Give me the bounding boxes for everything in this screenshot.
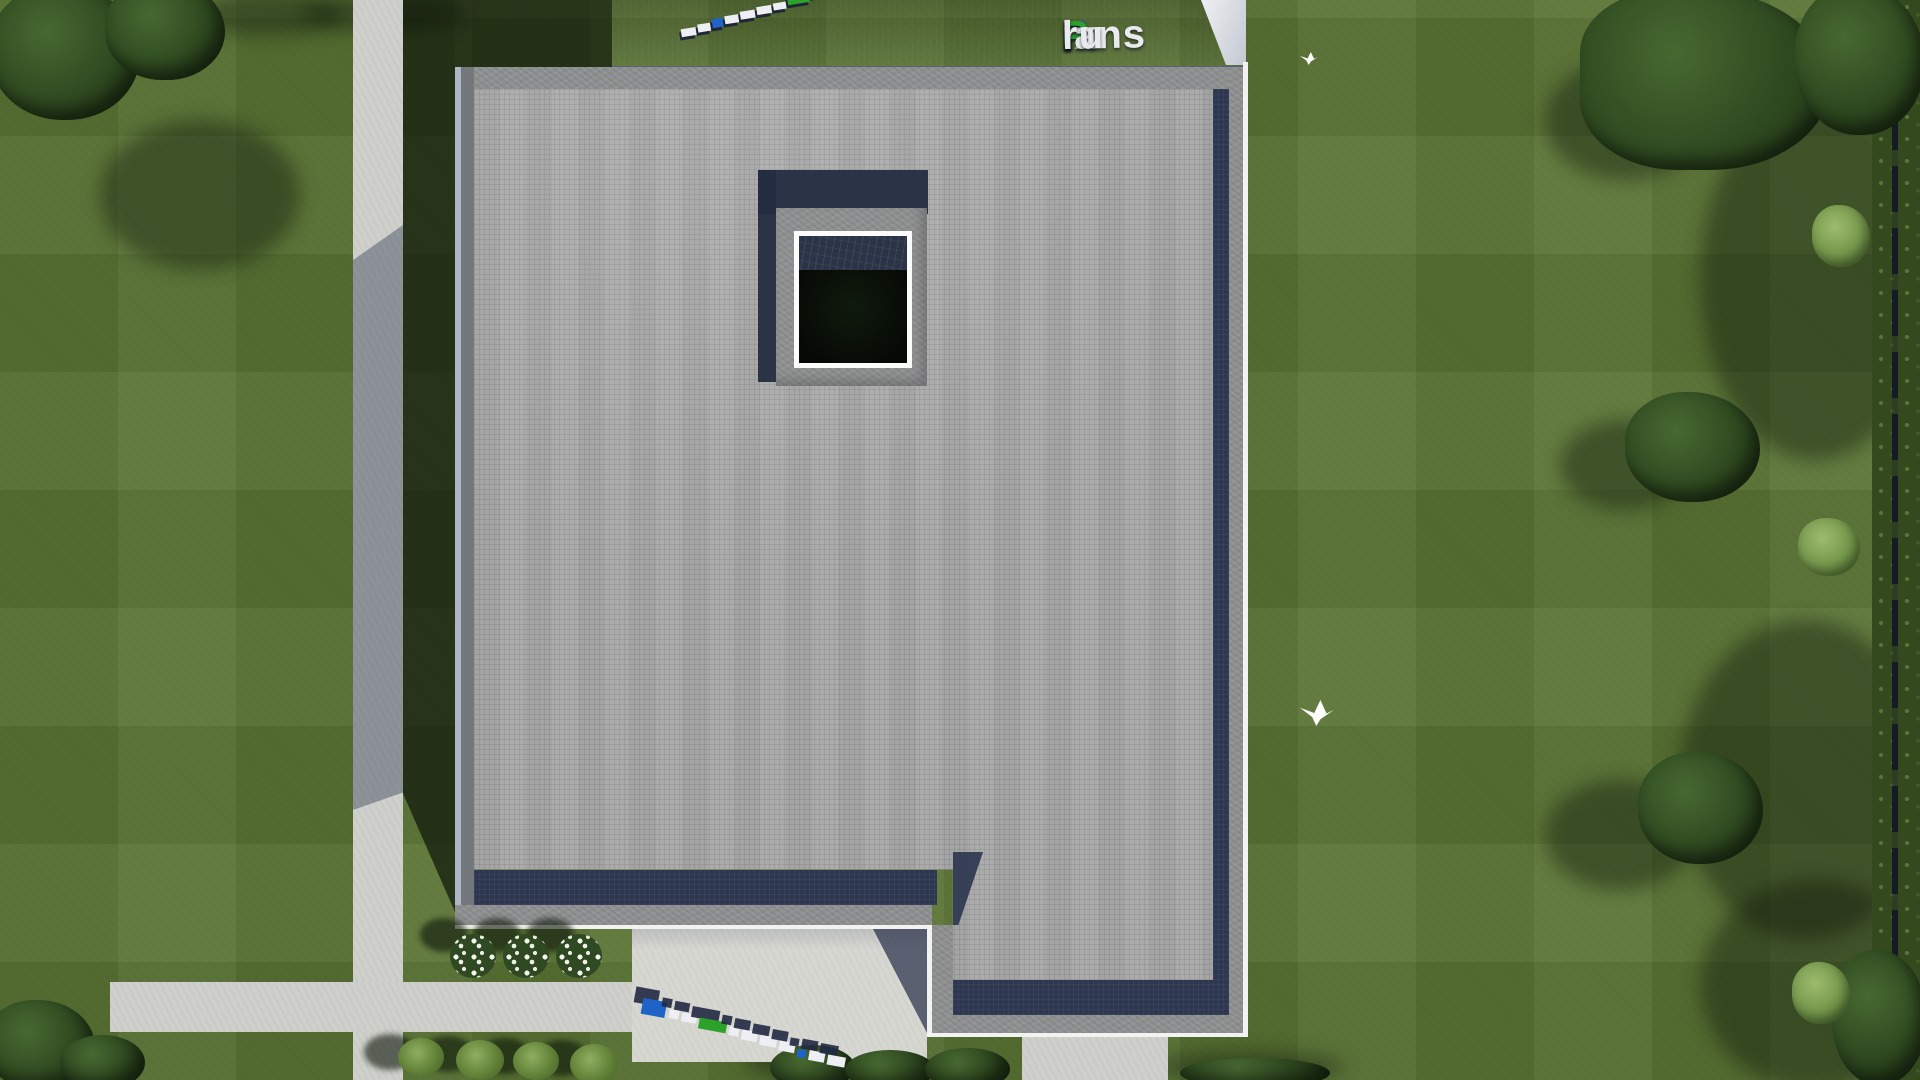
- watermark-block: [787, 0, 810, 5]
- tree: [1792, 962, 1850, 1024]
- watermark-block: [826, 1054, 846, 1067]
- parapet-bottom-left: [455, 905, 932, 925]
- tree: [1795, 0, 1920, 135]
- building-shadow: [403, 0, 455, 912]
- tree: [1625, 392, 1760, 502]
- watermark-block: [698, 1017, 728, 1033]
- watermark-block: [668, 1009, 679, 1020]
- bush: [513, 1042, 559, 1080]
- bush: [570, 1044, 618, 1080]
- roof-edge-bottom-right: [932, 1033, 1247, 1037]
- watermark-block: [641, 998, 668, 1018]
- skylight-glass: [799, 236, 907, 270]
- building-shadow-on-walkway: [353, 225, 403, 810]
- walkway-horizontal: [110, 982, 632, 1032]
- watermark-block: [728, 1026, 739, 1037]
- watermark-text: FixPlans.ru: [1062, 14, 1063, 60]
- tree: [1638, 752, 1763, 864]
- flower-bush: [450, 934, 496, 978]
- tree: [1812, 205, 1870, 267]
- watermark-block: [756, 5, 772, 15]
- watermark-block: [796, 1049, 806, 1059]
- watermark-block: [808, 1050, 826, 1063]
- tree: [1180, 1058, 1330, 1080]
- watermark-letter: ru: [1062, 13, 1105, 59]
- parapet-left: [455, 67, 474, 925]
- watermark-block: [759, 1035, 778, 1048]
- bush: [398, 1038, 444, 1076]
- watermark-block: [741, 1029, 759, 1042]
- skylight-opening: [799, 270, 907, 363]
- skylight-shadow: [758, 170, 776, 382]
- tree: [1798, 518, 1860, 576]
- tree: [1580, 0, 1830, 170]
- watermark-block: [681, 1012, 697, 1024]
- bush: [456, 1040, 504, 1080]
- watermark-block: [697, 23, 711, 33]
- tree: [1832, 950, 1920, 1080]
- flower-bush: [503, 934, 549, 978]
- tree-shadow: [100, 120, 300, 270]
- parapet-right: [1229, 67, 1243, 1033]
- parapet-top: [455, 67, 1246, 89]
- watermark-block: [773, 2, 787, 11]
- path-bottom-right: [1022, 1037, 1168, 1080]
- watermark-block: [711, 18, 723, 29]
- hedge-fence: [1872, 0, 1920, 1080]
- flower-bush: [556, 934, 602, 978]
- roof-band-bottom-right: [953, 980, 1229, 1015]
- roof-band-bottom-left: [474, 870, 937, 905]
- fence-line: [1892, 0, 1898, 1080]
- watermark-block: [724, 14, 739, 24]
- watermark-block: [740, 10, 756, 20]
- roof-band-right: [1213, 89, 1229, 1015]
- roof-edge-right: [1243, 62, 1248, 1037]
- building-shadow: [455, 0, 612, 67]
- watermark-block: [778, 1040, 796, 1053]
- skylight-frame: [794, 231, 912, 368]
- parapet-bottom-right: [932, 1015, 1243, 1033]
- scene-aerial-render: FixPlans.ru: [0, 0, 1920, 1080]
- watermark-block: [681, 27, 697, 37]
